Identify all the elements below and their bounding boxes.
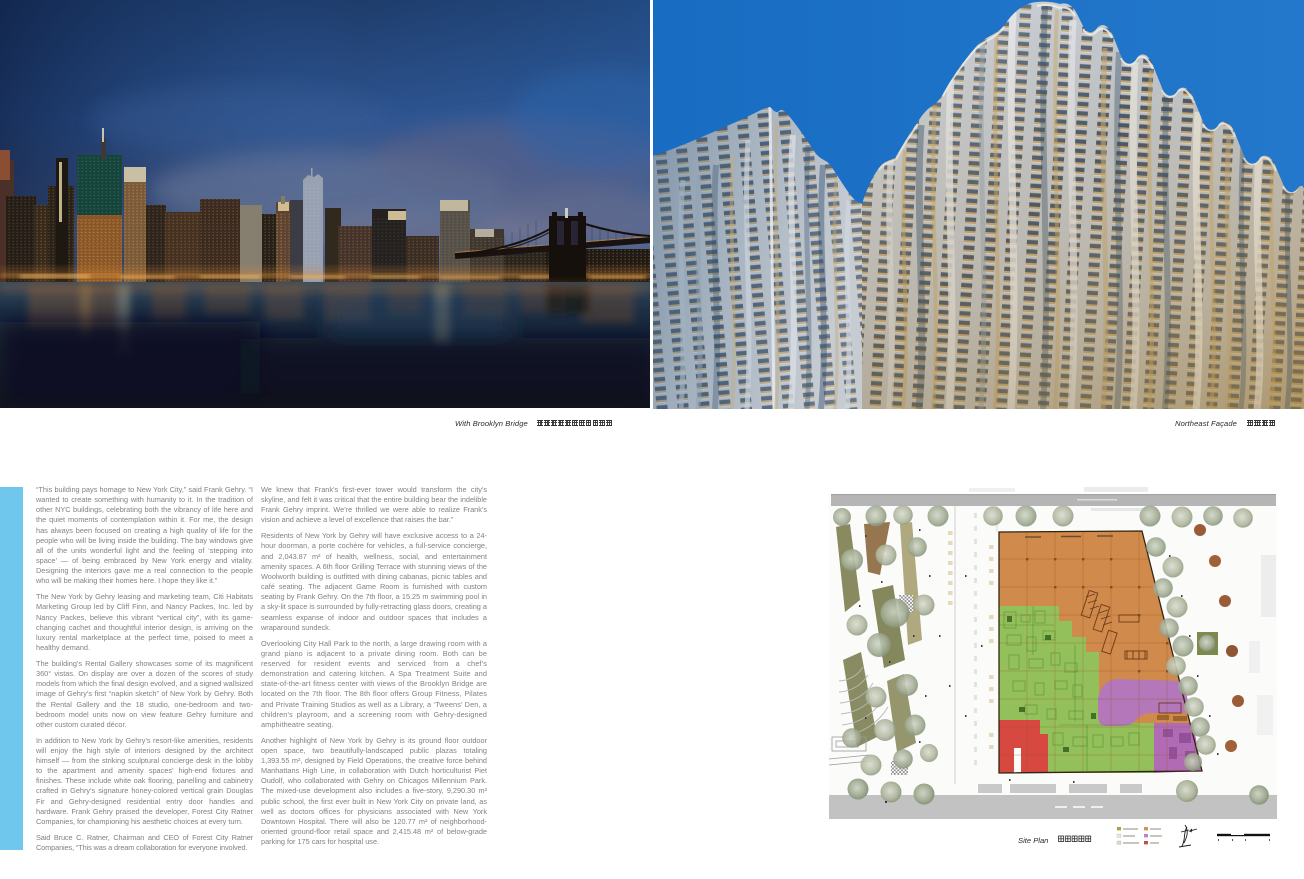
svg-text:Site Plan: Site Plan	[1018, 836, 1048, 845]
